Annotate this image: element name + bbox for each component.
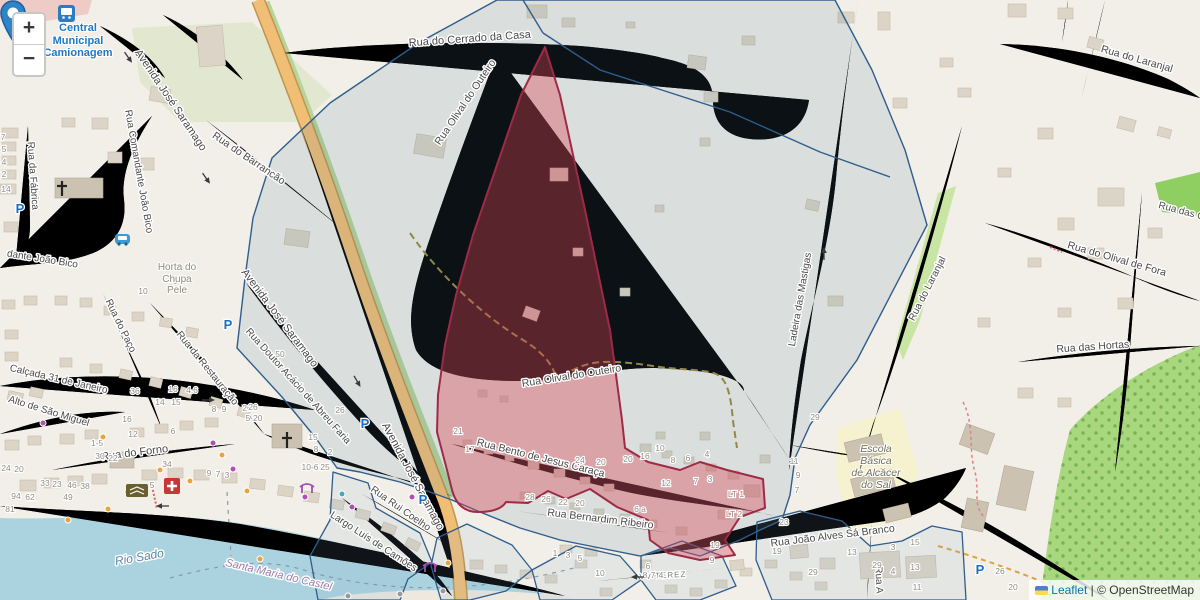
house-number: 14 bbox=[155, 397, 165, 407]
house-number: 8 bbox=[671, 455, 676, 465]
house-number: 7 bbox=[795, 485, 800, 495]
house-number: 2 bbox=[2, 169, 7, 179]
house-number: 81 bbox=[5, 504, 15, 514]
poi-dot-icon bbox=[100, 434, 106, 440]
house-number: 29 bbox=[872, 560, 882, 570]
house-number: 2 bbox=[328, 447, 333, 457]
poi-dot-icon bbox=[157, 467, 163, 473]
house-number: 16 bbox=[168, 384, 178, 394]
house-number: 11 bbox=[790, 456, 799, 466]
house-number: 21 bbox=[453, 426, 463, 436]
bus-station-label: Central Municipal Camionagem bbox=[34, 22, 122, 60]
parking-icon: P bbox=[419, 492, 428, 507]
house-number: 3 bbox=[891, 542, 896, 552]
house-number: 24 bbox=[1, 463, 11, 473]
house-number: 10-6 bbox=[301, 462, 318, 472]
zoom-control: + − bbox=[12, 12, 46, 77]
house-number: 16 bbox=[122, 414, 132, 424]
house-number: 4 bbox=[705, 449, 710, 459]
house-number: 3 bbox=[225, 470, 230, 480]
poi-dot-icon bbox=[440, 588, 446, 594]
house-number: 49 bbox=[63, 492, 73, 502]
poi-dot-icon bbox=[257, 556, 263, 562]
house-number: 9 bbox=[710, 555, 715, 565]
house-number: 22 bbox=[108, 453, 118, 463]
bus-station-icon[interactable] bbox=[58, 5, 75, 22]
car-icon bbox=[115, 234, 130, 246]
parking-icon: P bbox=[361, 416, 370, 431]
poi-dot-icon bbox=[105, 506, 111, 512]
map-canvas[interactable]: Rua do Cerrado da CasaRua Olival do Oute… bbox=[0, 0, 1200, 600]
house-number: 5 bbox=[2, 144, 7, 154]
house-number: 4 bbox=[659, 570, 664, 580]
house-number: 50 bbox=[275, 349, 285, 359]
school-label: Escola Básica de Alcácer do Sal bbox=[836, 443, 916, 491]
house-number: 8 bbox=[314, 444, 319, 454]
poi-dot-icon bbox=[65, 517, 71, 523]
house-number: 34 bbox=[162, 459, 172, 469]
map-base-svg: Rua do Cerrado da CasaRua Olival do Oute… bbox=[0, 0, 1200, 600]
house-number: 7 bbox=[694, 476, 699, 486]
house-number: 7 bbox=[216, 469, 221, 479]
house-number: 20 bbox=[623, 454, 633, 464]
house-number: 26 bbox=[248, 402, 258, 412]
house-number: 15 bbox=[171, 397, 181, 407]
house-number: 5 bbox=[578, 553, 583, 563]
house-number: 10 bbox=[655, 443, 665, 453]
house-number: 9 bbox=[222, 404, 227, 414]
house-number: 6 bbox=[686, 453, 691, 463]
house-number: 7 bbox=[1, 132, 6, 142]
poi-dot-icon bbox=[349, 504, 355, 510]
house-number: 28 bbox=[525, 492, 535, 502]
house-number: 25 bbox=[320, 462, 330, 472]
house-number: 4 bbox=[891, 566, 896, 576]
house-number: 23 bbox=[52, 479, 62, 489]
house-number: 13 bbox=[910, 562, 920, 572]
house-number: 15 bbox=[308, 432, 318, 442]
house-number: 26 bbox=[995, 566, 1005, 576]
house-number: LT 1 bbox=[728, 489, 744, 499]
house-number: 12 bbox=[661, 478, 671, 488]
poi-dot-icon bbox=[244, 488, 250, 494]
house-number: 4 bbox=[2, 157, 7, 167]
house-number: 8 bbox=[212, 404, 217, 414]
house-number: 38 bbox=[80, 481, 90, 491]
house-number: 1 bbox=[553, 548, 558, 558]
poi-dot-icon bbox=[219, 452, 225, 458]
house-number: 26 bbox=[335, 405, 345, 415]
house-number: 17 bbox=[465, 444, 475, 454]
poi-dot-icon bbox=[40, 420, 46, 426]
house-number: 23 bbox=[779, 517, 789, 527]
house-number: 3 bbox=[708, 474, 713, 484]
parking-icon: P bbox=[16, 201, 25, 216]
house-number: 20 bbox=[1008, 582, 1018, 592]
house-number: 94 bbox=[11, 491, 21, 501]
poi-dot-icon bbox=[397, 591, 403, 597]
house-number: LT 2 bbox=[726, 509, 742, 519]
house-number: 13 bbox=[847, 547, 857, 557]
house-number: 4.6 bbox=[186, 385, 198, 395]
house-number: 6 bbox=[171, 426, 176, 436]
house-number: 20 bbox=[575, 498, 585, 508]
house-number: 3 bbox=[566, 550, 571, 560]
house-number: 15 bbox=[910, 537, 920, 547]
poi-dot-icon bbox=[445, 560, 451, 566]
house-number: 26 bbox=[541, 494, 551, 504]
house-number: 62 bbox=[25, 492, 35, 502]
house-number: 46 bbox=[67, 480, 77, 490]
zoom-out-button[interactable]: − bbox=[14, 45, 44, 75]
archive-icon bbox=[126, 484, 148, 497]
poi-dot-icon bbox=[230, 466, 236, 472]
house-number: 14 bbox=[1, 184, 11, 194]
house-number: 5 bbox=[150, 480, 155, 490]
osm-link[interactable]: © OpenStreetMap bbox=[1097, 583, 1194, 597]
house-number: 6 a bbox=[634, 504, 646, 514]
poi-dot-icon bbox=[339, 491, 345, 497]
house-number: 12 bbox=[128, 429, 138, 439]
poi-dot-icon bbox=[302, 494, 308, 500]
house-number: 9 bbox=[207, 468, 212, 478]
house-number: 10 bbox=[595, 568, 605, 578]
house-number: 33 bbox=[40, 478, 50, 488]
ukraine-flag-icon bbox=[1035, 586, 1048, 595]
house-number: 20 bbox=[14, 464, 24, 474]
attribution-separator: | bbox=[1091, 583, 1094, 597]
pharmacy-icon bbox=[164, 478, 180, 494]
house-number: 19 bbox=[710, 540, 720, 550]
house-number: 11 bbox=[913, 582, 922, 592]
poi-dot-icon bbox=[187, 478, 193, 484]
parking-icon: P bbox=[976, 562, 985, 577]
house-number: 7 bbox=[651, 570, 656, 580]
house-number: 20 bbox=[596, 457, 606, 467]
house-number: 30 bbox=[95, 451, 105, 461]
house-number: 24 bbox=[575, 455, 585, 465]
house-number: 9 bbox=[796, 470, 801, 480]
house-number: 19 bbox=[772, 546, 782, 556]
house-number: 22 bbox=[558, 497, 568, 507]
house-number: 5-20 bbox=[245, 413, 262, 423]
parking-icon: P bbox=[224, 317, 233, 332]
house-number: 29 bbox=[810, 412, 820, 422]
house-number: 8 bbox=[643, 570, 648, 580]
house-number: 16 bbox=[640, 451, 650, 461]
street-label: Rua A bbox=[873, 566, 885, 594]
poi-dot-icon bbox=[409, 494, 415, 500]
poi-dot-icon bbox=[210, 440, 216, 446]
leaflet-link[interactable]: Leaflet bbox=[1051, 583, 1087, 597]
house-number: 36 bbox=[130, 386, 140, 396]
poi-dot-icon bbox=[345, 593, 351, 599]
zoom-in-button[interactable]: + bbox=[14, 14, 44, 45]
attribution-bar: Leaflet | © OpenStreetMap bbox=[1029, 580, 1200, 600]
house-number: 29 bbox=[808, 567, 818, 577]
farm-label: Horta do Chupa Pele bbox=[144, 262, 210, 297]
